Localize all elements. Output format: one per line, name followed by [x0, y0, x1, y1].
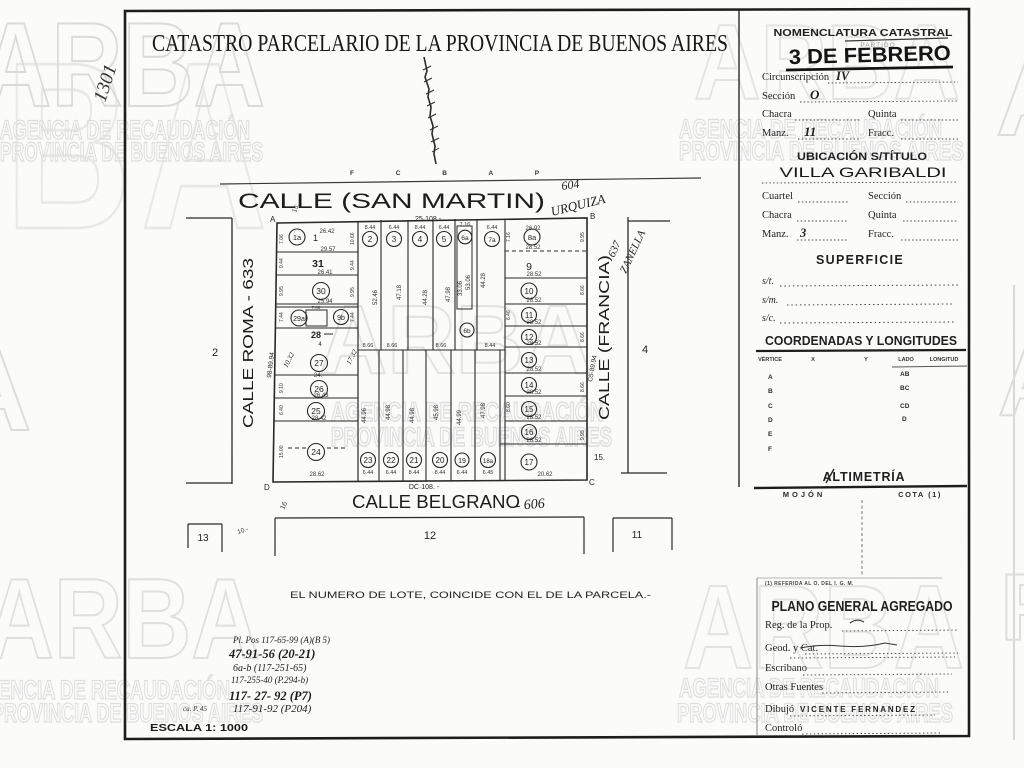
svg-text:21: 21: [410, 456, 419, 465]
svg-text:LADO: LADO: [898, 357, 914, 363]
svg-text:117- 27- 92 (P7): 117- 27- 92 (P7): [229, 689, 312, 703]
svg-text:Quinta: Quinta: [868, 109, 897, 120]
svg-text:Y: Y: [864, 357, 868, 363]
svg-text:C: C: [589, 478, 595, 487]
svg-text:3: 3: [392, 235, 397, 244]
svg-text:Controló: Controló: [765, 723, 802, 734]
svg-text:A: A: [0, 322, 32, 456]
svg-text:ESCALA 1: 1000: ESCALA 1: 1000: [150, 722, 248, 734]
svg-text:24: 24: [311, 447, 321, 457]
svg-text:6.45: 6.45: [483, 470, 494, 476]
svg-text:CATASTRO PARCELARIO DE LA PROV: CATASTRO PARCELARIO DE LA PROVINCIA DE B…: [152, 31, 728, 57]
svg-text:33.06: 33.06: [458, 280, 464, 296]
svg-text:11: 11: [804, 124, 816, 139]
svg-text:44.98: 44.98: [386, 404, 392, 420]
svg-text:4: 4: [418, 235, 423, 244]
svg-text:10.66: 10.66: [350, 232, 356, 245]
svg-text:47.98: 47.98: [446, 286, 452, 302]
svg-text:14: 14: [525, 381, 534, 390]
svg-text:5: 5: [442, 235, 447, 244]
svg-text:8.66: 8.66: [580, 285, 586, 295]
svg-text:9.10: 9.10: [279, 383, 285, 393]
svg-text:Geod. y Cat.: Geod. y Cat.: [765, 643, 818, 654]
svg-text:AB: AB: [900, 371, 910, 378]
svg-text:COORDENADAS Y LONGITUDES: COORDENADAS Y LONGITUDES: [765, 334, 957, 348]
svg-text:PROVINCIA DE BUENOS AIRES: PROVINCIA DE BUENOS AIRES: [0, 137, 263, 167]
svg-text:15.: 15.: [594, 453, 605, 462]
svg-text:9.95: 9.95: [580, 430, 586, 440]
svg-text:6.44: 6.44: [487, 225, 498, 231]
svg-text:8.44: 8.44: [485, 343, 496, 349]
svg-text:15: 15: [525, 405, 534, 414]
svg-text:VÉRTICE: VÉRTICE: [758, 355, 782, 363]
svg-text:9.44: 9.44: [350, 260, 356, 270]
svg-text:Reg. de la Prop.: Reg. de la Prop.: [765, 620, 832, 631]
svg-text:25: 25: [311, 406, 321, 416]
svg-text:B: B: [590, 212, 595, 221]
svg-text:44.98: 44.98: [410, 407, 416, 423]
svg-text:Sección: Sección: [868, 191, 902, 202]
svg-text:9.44: 9.44: [279, 258, 285, 268]
svg-text:52.46: 52.46: [373, 289, 379, 305]
svg-text:UBICACIÓN S/TÍTULO: UBICACIÓN S/TÍTULO: [797, 150, 927, 163]
svg-text:47-91-56 (20-21): 47-91-56 (20-21): [228, 647, 315, 661]
svg-text:12: 12: [424, 530, 436, 542]
svg-text:8.66: 8.66: [580, 332, 586, 342]
svg-text:7.16: 7.16: [460, 222, 471, 228]
svg-text:28.52: 28.52: [525, 245, 541, 251]
svg-text:47.18: 47.18: [397, 284, 403, 300]
svg-text:7.44: 7.44: [279, 312, 285, 322]
svg-text:28: 28: [311, 330, 321, 340]
svg-text:PROVINCIA DE BUENOS AIRES: PROVINCIA DE BUENOS AIRES: [331, 422, 612, 452]
svg-text:8.44: 8.44: [415, 225, 426, 231]
svg-text:CALLE (FRANCIA): CALLE (FRANCIA): [596, 255, 613, 420]
svg-text:8.44: 8.44: [365, 225, 376, 231]
svg-text:Otras Fuentes: Otras Fuentes: [765, 682, 823, 693]
svg-text:CALLE ROMA - 633: CALLE ROMA - 633: [240, 258, 257, 428]
svg-text:28.52: 28.52: [526, 320, 542, 326]
svg-text:D: D: [902, 416, 907, 423]
svg-text:26.92: 26.92: [525, 226, 541, 232]
svg-text:F C B A P: F C B A P: [350, 170, 559, 177]
svg-text:6a: 6a: [461, 235, 469, 242]
svg-text:ALTIMETRÍA: ALTIMETRÍA: [823, 469, 906, 484]
svg-text:9.95: 9.95: [580, 232, 586, 242]
svg-text:ca. P. 45: ca. P. 45: [183, 705, 207, 713]
svg-text:22: 22: [387, 456, 396, 465]
svg-text:26.42: 26.42: [319, 229, 335, 235]
svg-text:19: 19: [458, 458, 466, 465]
svg-text:6.46: 6.46: [506, 310, 512, 320]
svg-text:8.66: 8.66: [436, 343, 447, 349]
svg-text:CALLE BELGRANO: CALLE BELGRANO: [352, 492, 520, 512]
svg-text:28.52: 28.52: [526, 341, 542, 347]
svg-text:27: 27: [314, 358, 324, 368]
svg-text:Dibujó: Dibujó: [765, 704, 794, 715]
svg-text:ARBA: ARBA: [0, 0, 265, 132]
svg-text:44.28: 44.28: [481, 272, 487, 288]
svg-text:28.52: 28.52: [526, 415, 542, 421]
svg-text:E: E: [768, 431, 773, 438]
svg-text:24.: 24.: [314, 373, 323, 379]
svg-text:3: 3: [799, 226, 806, 240]
svg-text:NOMENCLATURA CATASTRAL: NOMENCLATURA CATASTRAL: [774, 27, 954, 39]
svg-text:C: C: [768, 403, 773, 410]
svg-text:MOJÓN: MOJÓN: [783, 490, 826, 499]
svg-text:D: D: [768, 417, 773, 424]
svg-text:31: 31: [312, 258, 324, 270]
svg-text:117-91-92 (P204): 117-91-92 (P204): [233, 703, 312, 715]
svg-text:28.62: 28.62: [309, 472, 325, 478]
svg-text:8.60: 8.60: [506, 402, 512, 412]
svg-text:1a: 1a: [293, 233, 302, 242]
svg-text:17: 17: [525, 458, 534, 467]
svg-text:2: 2: [212, 347, 218, 359]
svg-text:8.66: 8.66: [387, 343, 398, 349]
svg-text:Pl. Pos 117-65-99 (A)(B 5): Pl. Pos 117-65-99 (A)(B 5): [232, 635, 330, 645]
svg-text:DC·108. -: DC·108. -: [409, 484, 440, 491]
svg-text:8a: 8a: [528, 233, 537, 242]
svg-text:20: 20: [436, 456, 445, 465]
svg-text:20.62: 20.62: [537, 472, 553, 478]
svg-text:A: A: [996, 36, 1024, 159]
svg-text:7.06: 7.06: [279, 234, 285, 244]
svg-text:25·108.-: 25·108.-: [415, 216, 442, 223]
svg-text:(1) REFERIDA AL O. DEL I. G. M: (1) REFERIDA AL O. DEL I. G. M.: [765, 581, 854, 587]
svg-text:EL NUMERO DE LOTE, COINCIDE CO: EL NUMERO DE LOTE, COINCIDE CON EL DE LA…: [290, 590, 651, 600]
svg-text:LONGITUD: LONGITUD: [930, 357, 959, 363]
svg-text:10: 10: [525, 287, 534, 296]
svg-text:7.44: 7.44: [350, 312, 356, 322]
svg-text:9b: 9b: [337, 315, 345, 322]
svg-text:13: 13: [197, 533, 209, 544]
svg-text:CALLE (SAN MARTIN): CALLE (SAN MARTIN): [238, 190, 545, 213]
svg-text:1: 1: [313, 233, 318, 243]
svg-text:8.66: 8.66: [363, 343, 374, 349]
svg-text:4: 4: [642, 344, 648, 356]
svg-text:B: B: [768, 388, 773, 395]
svg-text:18a: 18a: [483, 459, 494, 465]
svg-text:8.44: 8.44: [409, 470, 420, 476]
svg-text:6.44: 6.44: [363, 470, 374, 476]
svg-text:Circunscripción: Circunscripción: [762, 72, 830, 83]
svg-text:IV: IV: [835, 69, 851, 83]
svg-text:117-255-40 (P.294-b): 117-255-40 (P.294-b): [231, 675, 308, 685]
svg-text:s/m.: s/m.: [762, 295, 778, 306]
svg-text:Manz.: Manz.: [762, 128, 789, 139]
svg-text:6.44: 6.44: [386, 470, 397, 476]
svg-text:7.16: 7.16: [506, 232, 512, 242]
svg-text:A: A: [768, 374, 773, 381]
svg-text:CD: CD: [900, 403, 910, 410]
svg-text:28.52: 28.52: [526, 390, 542, 396]
svg-text:23: 23: [364, 456, 373, 465]
svg-text:6b: 6b: [463, 328, 471, 335]
svg-text:D: D: [264, 483, 270, 492]
svg-text:44.28: 44.28: [423, 289, 429, 305]
svg-text:Manz.: Manz.: [762, 229, 789, 240]
svg-text:2: 2: [368, 235, 373, 244]
svg-text:PLANO GENERAL AGREGADO: PLANO GENERAL AGREGADO: [772, 599, 953, 615]
svg-text:6.40: 6.40: [279, 405, 285, 415]
svg-text:F: F: [768, 446, 772, 453]
svg-text:Chacra: Chacra: [762, 210, 792, 221]
svg-text:8.44: 8.44: [435, 470, 446, 476]
svg-text:O: O: [810, 87, 820, 102]
svg-text:SUPERFICIE: SUPERFICIE: [816, 253, 904, 267]
svg-text:R: R: [1000, 555, 1024, 661]
svg-text:28.52: 28.52: [526, 298, 542, 304]
svg-text:6.44: 6.44: [439, 225, 450, 231]
svg-text:8.66: 8.66: [580, 382, 586, 392]
svg-text:15.00: 15.00: [279, 445, 285, 458]
svg-text:Fracc.: Fracc.: [868, 128, 894, 139]
svg-text:VILLA GARIBALDI: VILLA GARIBALDI: [780, 164, 947, 180]
svg-text:45.98: 45.98: [434, 404, 440, 420]
svg-text:9.95: 9.95: [279, 286, 285, 296]
svg-text:11: 11: [525, 311, 534, 320]
svg-text:s/c.: s/c.: [762, 313, 776, 324]
svg-text:ARBA: ARBA: [0, 556, 260, 683]
svg-text:BC: BC: [900, 385, 910, 392]
svg-text:Cuartel: Cuartel: [762, 191, 793, 202]
svg-text:Fracc.: Fracc.: [868, 229, 894, 240]
svg-text:6a-b (117-251-65): 6a-b (117-251-65): [233, 663, 307, 674]
svg-text:A: A: [270, 215, 276, 224]
svg-text:13: 13: [525, 356, 534, 365]
svg-text:9.95: 9.95: [350, 287, 356, 297]
svg-text:6.44: 6.44: [457, 470, 468, 476]
svg-text:28.52: 28.52: [526, 438, 542, 444]
svg-text:Sección: Sección: [762, 91, 796, 102]
svg-text:604: 604: [560, 177, 580, 193]
svg-text:44.96: 44.96: [362, 407, 368, 423]
svg-text:A: A: [998, 330, 1024, 436]
svg-text:53.06: 53.06: [466, 274, 472, 290]
svg-text:- 606: - 606: [515, 496, 545, 513]
svg-text:COTA (1): COTA (1): [898, 490, 942, 499]
svg-text:X: X: [811, 357, 815, 363]
svg-text:VICENTE FERNANDEZ: VICENTE FERNANDEZ: [800, 705, 917, 714]
svg-text:30: 30: [316, 286, 326, 296]
svg-text:Chacra: Chacra: [762, 109, 792, 120]
svg-text:28.52: 28.52: [526, 272, 542, 278]
svg-text:Quinta: Quinta: [868, 210, 897, 221]
svg-text:44.99: 44.99: [457, 409, 463, 425]
svg-text:28.52: 28.52: [526, 367, 542, 373]
svg-text:Escribano: Escribano: [765, 663, 807, 674]
svg-text:11: 11: [632, 530, 643, 541]
svg-text:6.44: 6.44: [389, 225, 400, 231]
svg-text:7.88: 7.88: [312, 305, 321, 310]
svg-text:s/t.: s/t.: [762, 276, 774, 287]
svg-text:16: 16: [525, 428, 534, 437]
svg-text:3 DE FEBRERO: 3 DE FEBRERO: [789, 42, 952, 69]
svg-text:47.98: 47.98: [481, 402, 487, 418]
svg-text:29a: 29a: [293, 316, 305, 323]
svg-text:7a: 7a: [488, 237, 496, 244]
